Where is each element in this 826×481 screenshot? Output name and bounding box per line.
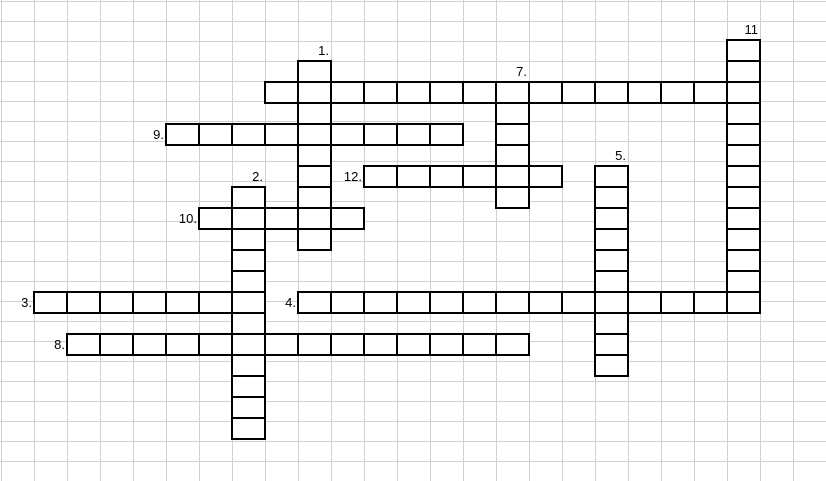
crossword-cell[interactable] — [297, 81, 332, 104]
crossword-cell[interactable] — [264, 123, 299, 146]
crossword-cell[interactable] — [726, 249, 761, 272]
crossword-cell[interactable] — [231, 333, 266, 356]
crossword-cell[interactable] — [594, 186, 629, 209]
crossword-cell[interactable] — [231, 270, 266, 293]
crossword-cell[interactable] — [726, 60, 761, 83]
crossword-cell[interactable] — [198, 333, 233, 356]
crossword-cell[interactable] — [132, 333, 167, 356]
crossword-cell[interactable] — [528, 81, 563, 104]
crossword-cell[interactable] — [66, 291, 101, 314]
crossword-cell[interactable] — [264, 333, 299, 356]
crossword-cell[interactable] — [198, 207, 233, 230]
crossword-cell[interactable] — [231, 123, 266, 146]
crossword-cell[interactable] — [297, 291, 332, 314]
crossword-cell[interactable] — [231, 228, 266, 251]
crossword-cell[interactable] — [396, 165, 431, 188]
crossword-cell[interactable] — [264, 207, 299, 230]
crossword-cell[interactable] — [363, 81, 398, 104]
clue-number-label: 7. — [496, 61, 529, 82]
crossword-cell[interactable] — [198, 123, 233, 146]
crossword-cell[interactable] — [726, 165, 761, 188]
crossword-cell[interactable] — [231, 186, 266, 209]
crossword-cell[interactable] — [231, 291, 266, 314]
crossword-cell[interactable] — [396, 333, 431, 356]
crossword-cell[interactable] — [99, 291, 134, 314]
clue-number-label: 4. — [265, 292, 298, 313]
crossword-cell[interactable] — [231, 354, 266, 377]
crossword-cell[interactable] — [561, 81, 596, 104]
spreadsheet-grid: 1.2.3.4.5.7.8.9.10.1112. — [0, 0, 826, 481]
crossword-cell[interactable] — [660, 81, 695, 104]
crossword-cell[interactable] — [495, 333, 530, 356]
clue-number-label: 10. — [166, 208, 199, 229]
crossword-cell[interactable] — [297, 144, 332, 167]
crossword-cell[interactable] — [495, 102, 530, 125]
clue-number-label: 5. — [595, 145, 628, 166]
crossword-cell[interactable] — [297, 186, 332, 209]
crossword-cell[interactable] — [396, 123, 431, 146]
crossword-cell[interactable] — [132, 291, 167, 314]
crossword-cell[interactable] — [297, 207, 332, 230]
crossword-cell[interactable] — [561, 291, 596, 314]
crossword-cell[interactable] — [231, 417, 266, 440]
crossword-cell[interactable] — [726, 144, 761, 167]
crossword-cell[interactable] — [726, 81, 761, 104]
crossword-cell[interactable] — [660, 291, 695, 314]
crossword-cell[interactable] — [726, 228, 761, 251]
crossword-cell[interactable] — [429, 123, 464, 146]
crossword-cell[interactable] — [231, 375, 266, 398]
crossword-cell[interactable] — [594, 291, 629, 314]
crossword-cell[interactable] — [495, 186, 530, 209]
crossword-cell[interactable] — [429, 81, 464, 104]
crossword-cell[interactable] — [198, 291, 233, 314]
crossword-cell[interactable] — [594, 270, 629, 293]
crossword-cell[interactable] — [693, 291, 728, 314]
crossword-cell[interactable] — [462, 333, 497, 356]
crossword-cell[interactable] — [462, 165, 497, 188]
crossword-cell[interactable] — [231, 396, 266, 419]
crossword-cell[interactable] — [66, 333, 101, 356]
crossword-cell[interactable] — [231, 207, 266, 230]
clue-number-label: 1. — [298, 40, 331, 61]
crossword-cell[interactable] — [627, 291, 662, 314]
crossword-cell[interactable] — [594, 249, 629, 272]
crossword-cell[interactable] — [231, 249, 266, 272]
crossword-cell[interactable] — [297, 333, 332, 356]
crossword-cell[interactable] — [363, 333, 398, 356]
crossword-cell[interactable] — [495, 123, 530, 146]
crossword-cell[interactable] — [594, 312, 629, 335]
crossword-cell[interactable] — [429, 291, 464, 314]
clue-number-label: 11 — [727, 19, 760, 40]
crossword-cell[interactable] — [363, 165, 398, 188]
crossword-cell[interactable] — [726, 207, 761, 230]
crossword-cell[interactable] — [726, 291, 761, 314]
crossword-cell[interactable] — [528, 165, 563, 188]
crossword-cell[interactable] — [165, 333, 200, 356]
crossword-cell[interactable] — [726, 186, 761, 209]
crossword-cell[interactable] — [33, 291, 68, 314]
crossword-cell[interactable] — [330, 291, 365, 314]
clue-number-label: 2. — [232, 166, 265, 187]
crossword-cell[interactable] — [495, 165, 530, 188]
crossword-cell[interactable] — [264, 81, 299, 104]
crossword-cell[interactable] — [165, 291, 200, 314]
crossword-cell[interactable] — [726, 39, 761, 62]
crossword-cell[interactable] — [495, 291, 530, 314]
crossword-cell[interactable] — [429, 165, 464, 188]
crossword-cell[interactable] — [429, 333, 464, 356]
clue-number-label: 9. — [133, 124, 166, 145]
crossword-cell[interactable] — [297, 228, 332, 251]
clue-number-label: 3. — [1, 292, 34, 313]
crossword-cell[interactable] — [594, 333, 629, 356]
crossword-cell[interactable] — [363, 123, 398, 146]
crossword-cell[interactable] — [231, 312, 266, 335]
crossword-cell[interactable] — [330, 207, 365, 230]
crossword-cell[interactable] — [330, 81, 365, 104]
crossword-cell[interactable] — [297, 102, 332, 125]
crossword-cell[interactable] — [165, 123, 200, 146]
crossword-cell[interactable] — [726, 102, 761, 125]
crossword-cell[interactable] — [363, 291, 398, 314]
crossword-cell[interactable] — [297, 60, 332, 83]
crossword-cell[interactable] — [594, 354, 629, 377]
crossword-cell[interactable] — [495, 81, 530, 104]
crossword-cell[interactable] — [726, 270, 761, 293]
crossword-cell[interactable] — [594, 207, 629, 230]
crossword-cell[interactable] — [594, 81, 629, 104]
crossword-cell[interactable] — [99, 333, 134, 356]
crossword-cell[interactable] — [693, 81, 728, 104]
clue-number-label: 12. — [331, 166, 364, 187]
crossword-cell[interactable] — [297, 123, 332, 146]
crossword-cell[interactable] — [594, 165, 629, 188]
crossword-cell[interactable] — [330, 123, 365, 146]
crossword-cell[interactable] — [330, 333, 365, 356]
crossword-cell[interactable] — [495, 144, 530, 167]
clue-number-label: 8. — [34, 334, 67, 355]
crossword-cell[interactable] — [594, 228, 629, 251]
crossword-cell[interactable] — [396, 291, 431, 314]
crossword-cell[interactable] — [297, 165, 332, 188]
crossword-cell[interactable] — [726, 123, 761, 146]
crossword-cell[interactable] — [396, 81, 431, 104]
crossword-cell[interactable] — [462, 291, 497, 314]
crossword-cell[interactable] — [528, 291, 563, 314]
crossword-cell[interactable] — [462, 81, 497, 104]
crossword-cell[interactable] — [627, 81, 662, 104]
